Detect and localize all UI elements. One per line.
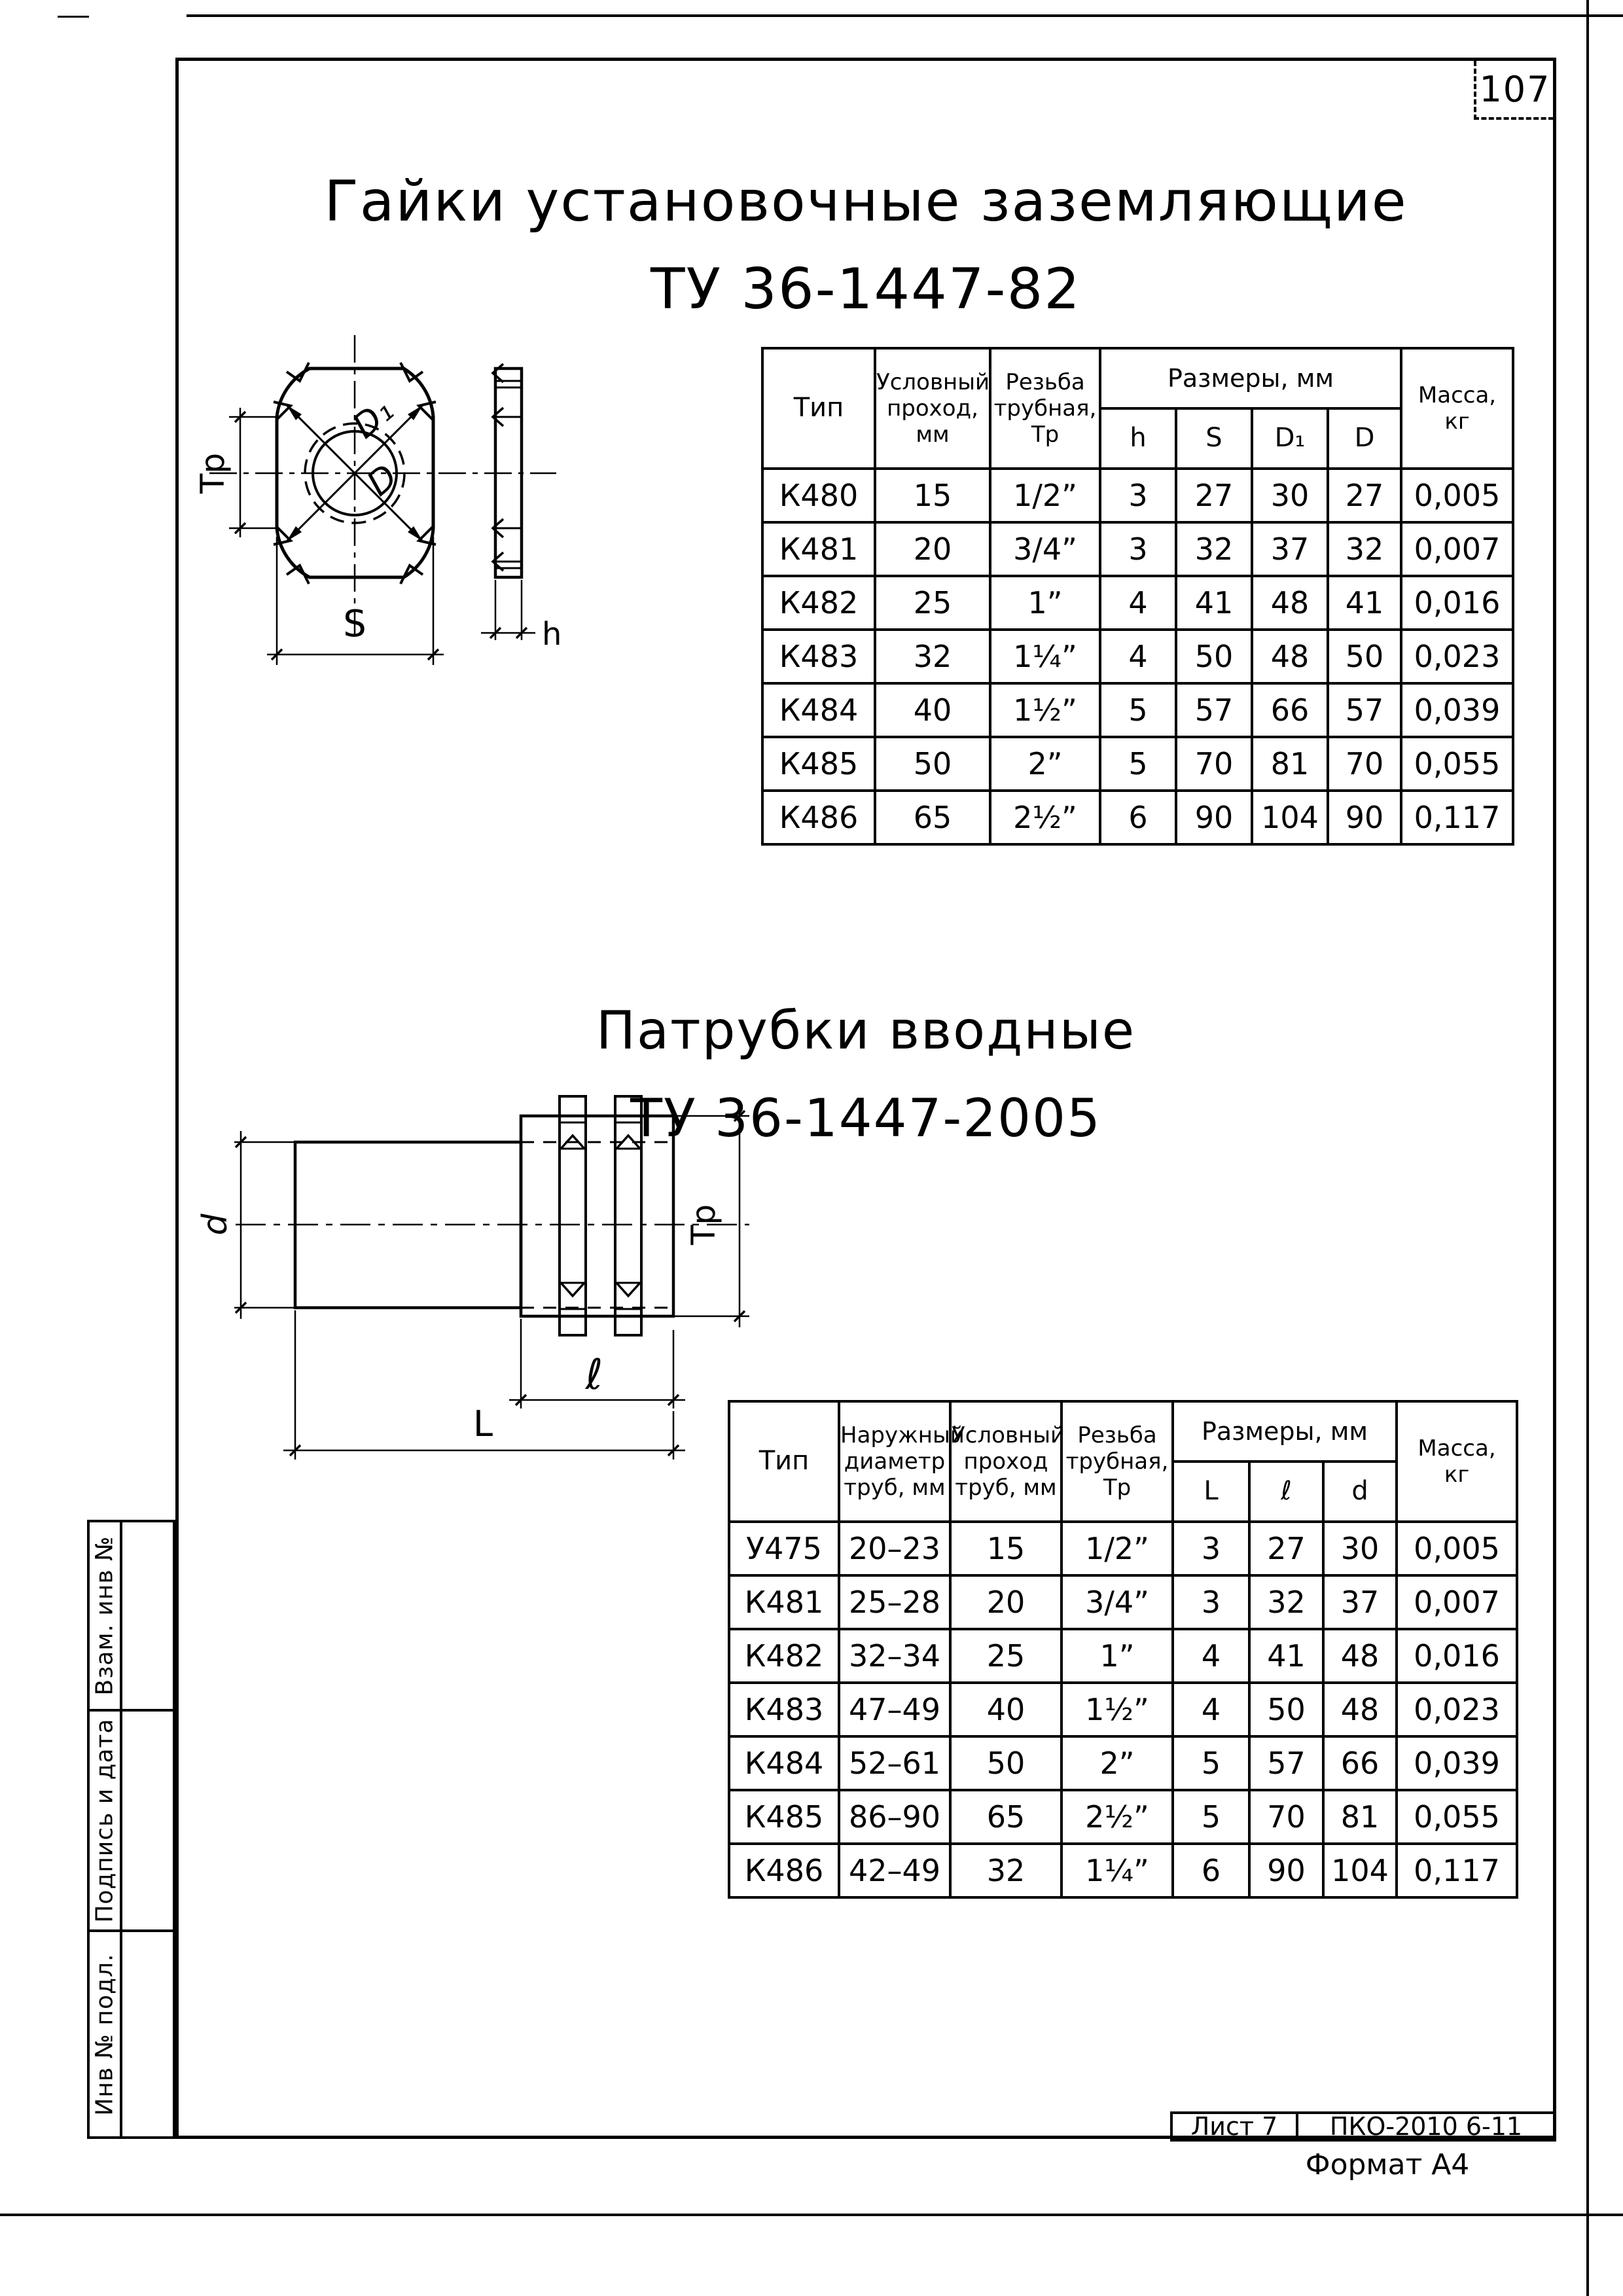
table-cell: К484: [729, 1736, 839, 1790]
table-cell: 47–49: [839, 1683, 950, 1736]
thread-nut-strip: [560, 1096, 586, 1335]
table-cell: К485: [762, 737, 875, 791]
table-cell: 81: [1252, 737, 1328, 791]
table-cell: К482: [762, 576, 875, 630]
table-row: К48586–90652½”570810,055: [729, 1790, 1517, 1844]
table-cell: 70: [1176, 737, 1252, 791]
table-cell: 104: [1323, 1844, 1397, 1897]
table-cell: 27: [1176, 469, 1252, 522]
table-row: К480151/2”32730270,005: [762, 469, 1513, 522]
table-cell: 1½”: [990, 683, 1100, 737]
table-cell: 30: [1252, 469, 1328, 522]
table-cell: 32: [1328, 522, 1401, 576]
sidebar-empty-cell: [122, 1932, 173, 2136]
table-cell: К486: [729, 1844, 839, 1897]
table-cell: 57: [1176, 683, 1252, 737]
nut-strip-lines: [560, 1122, 641, 1309]
sidebar-label-cell: Инв № подл.: [90, 1932, 122, 2136]
col-header-d: D: [1328, 408, 1401, 469]
table-cell: 0,055: [1401, 737, 1513, 791]
col-header-type: Тип: [729, 1401, 839, 1522]
table-cell: 2”: [990, 737, 1100, 791]
table-cell: 3/4”: [1061, 1575, 1173, 1629]
table-cell: К486: [762, 791, 875, 844]
col-header-h: h: [1100, 408, 1176, 469]
dim-label-l-small: ℓ: [585, 1351, 603, 1399]
table-cell: 2½”: [990, 791, 1100, 844]
table-cell: 1/2”: [1061, 1522, 1173, 1575]
table-cell: 2½”: [1061, 1790, 1173, 1844]
collar-hidden-lines: [521, 1142, 673, 1308]
dim-label-l-big: L: [473, 1403, 493, 1444]
table-row: К48232–34251”441480,016: [729, 1629, 1517, 1683]
table-cell: 40: [875, 683, 990, 737]
table-cell: У475: [729, 1522, 839, 1575]
h-extension-lines: [495, 580, 522, 640]
pipe-drawing: d Тр ℓ L: [216, 1086, 792, 1479]
table-cell: 48: [1323, 1629, 1397, 1683]
scan-artifact-bottom-line: [0, 2214, 1623, 2216]
scan-artifact-top-line: [187, 14, 1623, 17]
sheet-stamp: Лист 7 ПКО-2010 6-11: [1170, 2111, 1556, 2142]
table-cell: К480: [762, 469, 875, 522]
table-cell: 32: [950, 1844, 1061, 1897]
side-view-section-lines: [495, 381, 522, 568]
table-cell: 0,117: [1397, 1844, 1517, 1897]
table-cell: 30: [1323, 1522, 1397, 1575]
table-cell: 25: [875, 576, 990, 630]
nut-drawing: D₁ D Тр S h: [190, 340, 576, 681]
dim-label-tp: Тр: [194, 453, 232, 494]
table-cell: 0,007: [1401, 522, 1513, 576]
table-cell: 1”: [990, 576, 1100, 630]
table-cell: 86–90: [839, 1790, 950, 1844]
table-cell: 37: [1323, 1575, 1397, 1629]
table-row: К48452–61502”557660,039: [729, 1736, 1517, 1790]
table-cell: К484: [762, 683, 875, 737]
table-row: К482251”44148410,016: [762, 576, 1513, 630]
table-cell: 70: [1249, 1790, 1323, 1844]
table-cell: 0,023: [1401, 630, 1513, 683]
table-cell: 0,005: [1401, 469, 1513, 522]
table-cell: 42–49: [839, 1844, 950, 1897]
table-cell: 41: [1249, 1629, 1323, 1683]
table-row: К483321¼”45048500,023: [762, 630, 1513, 683]
dim-label-s: S: [343, 603, 366, 645]
section2-title: Патрубки вводные: [175, 1000, 1556, 1061]
table-cell: 1”: [1061, 1629, 1173, 1683]
table-cell: 57: [1249, 1736, 1323, 1790]
table-cell: 50: [1176, 630, 1252, 683]
sidebar-empty-cell: [122, 1712, 173, 1929]
table-cell: 32–34: [839, 1629, 950, 1683]
section1-subtitle: ТУ 36-1447-82: [175, 257, 1556, 322]
col-header-d1: D₁: [1252, 408, 1328, 469]
table-row: К481203/4”33237320,007: [762, 522, 1513, 576]
table-cell: 50: [1328, 630, 1401, 683]
table-cell: 0,016: [1397, 1629, 1517, 1683]
table-cell: 4: [1100, 576, 1176, 630]
col-header-d: d: [1323, 1462, 1397, 1522]
table-row: К48347–49401½”450480,023: [729, 1683, 1517, 1736]
pipe-table: Тип Наружный диаметр труб, мм Условный п…: [728, 1400, 1518, 1899]
table-cell: 1/2”: [990, 469, 1100, 522]
nut-strip-notches: [561, 1136, 640, 1296]
table-cell: 41: [1328, 576, 1401, 630]
table-cell: 25: [950, 1629, 1061, 1683]
sidebar-label-cell: Взам. инв №: [90, 1522, 122, 1709]
table-cell: К483: [762, 630, 875, 683]
table-cell: 50: [1249, 1683, 1323, 1736]
table-cell: 50: [875, 737, 990, 791]
col-header-type: Тип: [762, 348, 875, 469]
table-cell: 15: [875, 469, 990, 522]
table-cell: 6: [1173, 1844, 1249, 1897]
table-cell: 0,023: [1397, 1683, 1517, 1736]
table-cell: 90: [1328, 791, 1401, 844]
table-cell: 37: [1252, 522, 1328, 576]
table-cell: 32: [1176, 522, 1252, 576]
col-header-pass: Условный проход, мм: [875, 348, 990, 469]
table-cell: 0,007: [1397, 1575, 1517, 1629]
sheet-number: Лист 7: [1173, 2114, 1298, 2139]
table-cell: 0,039: [1397, 1736, 1517, 1790]
table-cell: 20: [875, 522, 990, 576]
table-cell: 5: [1173, 1790, 1249, 1844]
table-row: К486652½”690104900,117: [762, 791, 1513, 844]
sidebar-label: Взам. инв №: [92, 1536, 118, 1696]
table-cell: К485: [729, 1790, 839, 1844]
dim-label-h: h: [542, 616, 562, 653]
table-cell: 2”: [1061, 1736, 1173, 1790]
table-cell: 4: [1173, 1683, 1249, 1736]
table-cell: 20–23: [839, 1522, 950, 1575]
table-cell: К481: [762, 522, 875, 576]
thread-nut-strip: [615, 1096, 641, 1335]
table-cell: 1¼”: [990, 630, 1100, 683]
dim-label-d: d: [196, 1213, 235, 1236]
sidebar-stamp: Взам. инв № Подпись и дата Инв № подл.: [87, 1520, 175, 2139]
table-cell: 3: [1100, 522, 1176, 576]
table-cell: 66: [1323, 1736, 1397, 1790]
dim-label-d1: D₁: [346, 391, 401, 446]
table-cell: 41: [1176, 576, 1252, 630]
table-cell: 1½”: [1061, 1683, 1173, 1736]
table-cell: 15: [950, 1522, 1061, 1575]
scan-artifact-top-dash: [58, 16, 89, 18]
table-cell: 5: [1100, 737, 1176, 791]
table-cell: 57: [1328, 683, 1401, 737]
pipe-collar: [521, 1116, 673, 1316]
table-cell: 65: [875, 791, 990, 844]
table-cell: 40: [950, 1683, 1061, 1736]
col-header-l: ℓ: [1249, 1462, 1323, 1522]
table-cell: 6: [1100, 791, 1176, 844]
table-row: К484401½”55766570,039: [762, 683, 1513, 737]
table-cell: 32: [875, 630, 990, 683]
table-cell: 90: [1176, 791, 1252, 844]
table-cell: 50: [950, 1736, 1061, 1790]
sidebar-cell-podpis: Подпись и дата: [90, 1712, 173, 1932]
table-cell: 52–61: [839, 1736, 950, 1790]
table-row: К48125–28203/4”332370,007: [729, 1575, 1517, 1629]
sidebar-label-cell: Подпись и дата: [90, 1712, 122, 1929]
table-row: У47520–23151/2”327300,005: [729, 1522, 1517, 1575]
table-cell: 90: [1249, 1844, 1323, 1897]
table-cell: К482: [729, 1629, 839, 1683]
sidebar-empty-cell: [122, 1522, 173, 1709]
table-cell: 48: [1323, 1683, 1397, 1736]
table-cell: К481: [729, 1575, 839, 1629]
col-header-thread: Резьба трубная, Тр: [990, 348, 1100, 469]
table-cell: 104: [1252, 791, 1328, 844]
page-number: 107: [1479, 69, 1550, 110]
format-label: Формат А4: [1276, 2148, 1499, 2181]
table-cell: 27: [1328, 469, 1401, 522]
section1-title: Гайки установочные заземляющие: [175, 169, 1556, 234]
table-cell: 81: [1323, 1790, 1397, 1844]
table-cell: 32: [1249, 1575, 1323, 1629]
table-cell: 1¼”: [1061, 1844, 1173, 1897]
table-cell: 65: [950, 1790, 1061, 1844]
table-row: К48642–49321¼”6901040,117: [729, 1844, 1517, 1897]
table-cell: 0,005: [1397, 1522, 1517, 1575]
table-cell: 5: [1100, 683, 1176, 737]
col-header-outer-diameter: Наружный диаметр труб, мм: [839, 1401, 950, 1522]
sidebar-cell-vzam: Взам. инв №: [90, 1522, 173, 1712]
table-cell: 3: [1100, 469, 1176, 522]
document-code: ПКО-2010 6-11: [1298, 2114, 1554, 2139]
table-cell: 25–28: [839, 1575, 950, 1629]
col-header-pass: Условный проход труб, мм: [950, 1401, 1061, 1522]
table-cell: 0,039: [1401, 683, 1513, 737]
table-cell: 48: [1252, 630, 1328, 683]
table-cell: 20: [950, 1575, 1061, 1629]
table-cell: 4: [1173, 1629, 1249, 1683]
sidebar-cell-inv: Инв № подл.: [90, 1932, 173, 2136]
sidebar-label: Инв № подл.: [92, 1953, 118, 2115]
table-cell: 5: [1173, 1736, 1249, 1790]
table-cell: 48: [1252, 576, 1328, 630]
table-cell: 0,016: [1401, 576, 1513, 630]
nut-table: Тип Условный проход, мм Резьба трубная, …: [761, 347, 1514, 846]
col-header-sizes: Размеры, мм: [1173, 1401, 1397, 1462]
table-cell: 70: [1328, 737, 1401, 791]
table-cell: 0,055: [1397, 1790, 1517, 1844]
table-cell: 0,117: [1401, 791, 1513, 844]
col-header-sizes: Размеры, мм: [1100, 348, 1401, 408]
table-cell: 66: [1252, 683, 1328, 737]
col-header-s: S: [1176, 408, 1252, 469]
table-row: К485502”57081700,055: [762, 737, 1513, 791]
table-cell: 3: [1173, 1575, 1249, 1629]
col-header-thread: Резьба трубная, Тр: [1061, 1401, 1173, 1522]
scan-artifact-right-line: [1586, 0, 1589, 2296]
dim-label-tp: Тр: [685, 1204, 722, 1246]
table-cell: 4: [1100, 630, 1176, 683]
table-cell: К483: [729, 1683, 839, 1736]
table-cell: 3: [1173, 1522, 1249, 1575]
col-header-mass: Масса, кг: [1401, 348, 1513, 469]
sidebar-label: Подпись и дата: [92, 1718, 118, 1922]
page-number-box: 107: [1474, 61, 1554, 120]
col-header-mass: Масса, кг: [1397, 1401, 1517, 1522]
table-cell: 3/4”: [990, 522, 1100, 576]
col-header-L: L: [1173, 1462, 1249, 1522]
table-cell: 27: [1249, 1522, 1323, 1575]
